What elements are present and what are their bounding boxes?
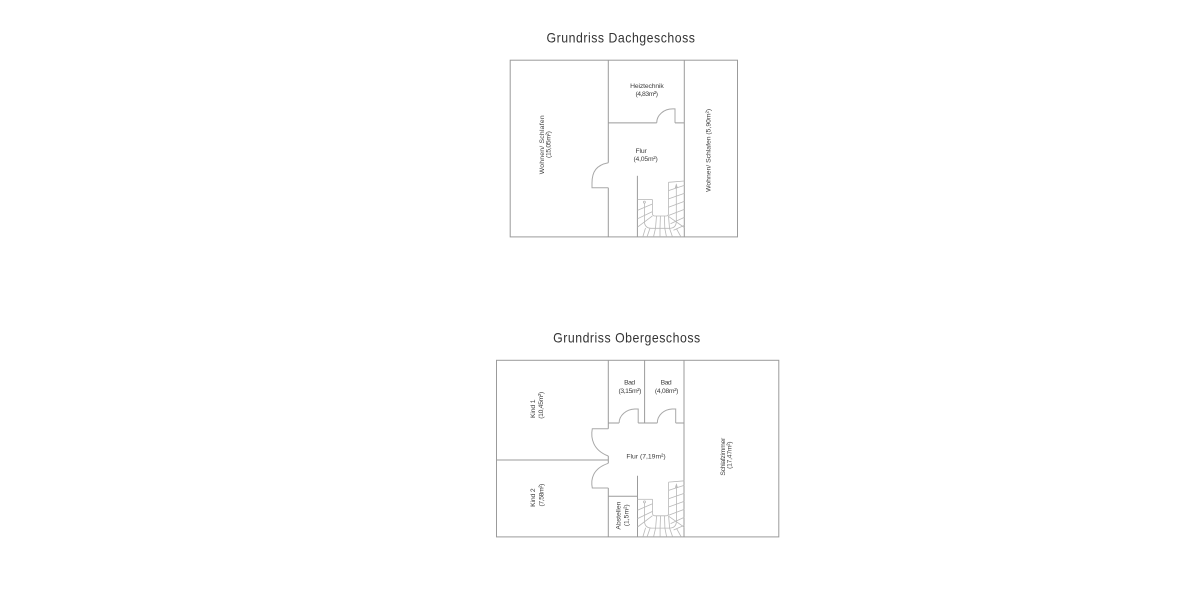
svg-text:(4,83m²): (4,83m²) (635, 91, 657, 98)
svg-text:(4,05m²): (4,05m²) (633, 156, 657, 163)
svg-text:Heiztechnik: Heiztechnik (630, 83, 664, 90)
svg-text:(17,47m²): (17,47m²) (726, 442, 733, 469)
svg-text:Kind 1: Kind 1 (530, 399, 537, 418)
svg-text:Kind 2: Kind 2 (530, 488, 537, 507)
svg-text:Grundriss Dachgeschoss: Grundriss Dachgeschoss (547, 30, 696, 46)
svg-text:Bad: Bad (661, 380, 672, 387)
svg-text:Flur (7,19m²): Flur (7,19m²) (626, 453, 665, 460)
svg-text:(4,08m²): (4,08m²) (655, 388, 678, 395)
svg-text:(7,58m²): (7,58m²) (538, 484, 545, 507)
svg-text:Abstellen: Abstellen (615, 501, 622, 529)
svg-text:(15,05m²): (15,05m²) (545, 131, 552, 158)
svg-text:Wohnen/ Schlafen (5,90m²): Wohnen/ Schlafen (5,90m²) (706, 109, 713, 192)
svg-text:(10,45m²): (10,45m²) (538, 392, 545, 419)
svg-text:Flur: Flur (636, 148, 648, 155)
svg-text:(3,15m²): (3,15m²) (618, 388, 641, 395)
svg-text:Bad: Bad (624, 380, 635, 387)
svg-text:(1,5m²): (1,5m²) (624, 504, 631, 526)
svg-text:Grundriss Obergeschoss: Grundriss Obergeschoss (553, 330, 701, 346)
